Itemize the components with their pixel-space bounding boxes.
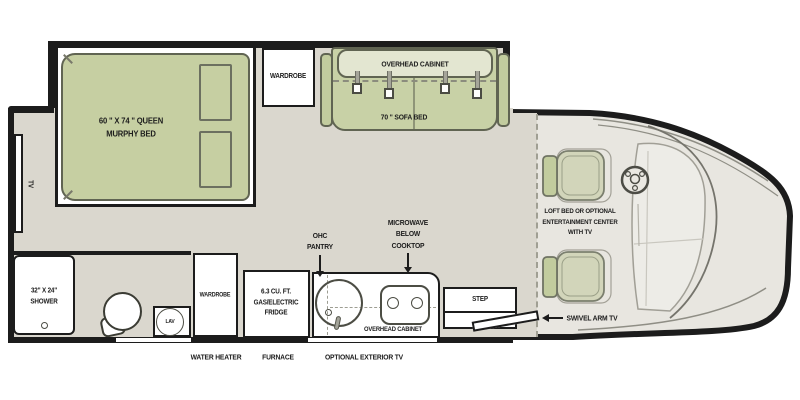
optional-exterior-tv-label: OPTIONAL EXTERIOR TV (325, 351, 403, 362)
exterior-tv-wall-inset (307, 337, 438, 343)
step-label: STEP (472, 295, 488, 306)
burner-icon (387, 297, 399, 309)
left-arrow-icon (542, 314, 549, 322)
shower-label: 32" X 24" SHOWER (30, 287, 57, 308)
driver-seat (543, 149, 611, 202)
sofa-armrest (497, 53, 510, 127)
down-arrow-icon (407, 253, 409, 267)
fridge-label: 6.3 CU. FT. GAS/ELECTRIC FRIDGE (254, 287, 299, 319)
loft-bed-label: LOFT BED OR OPTIONAL ENTERTAINMENT CENTE… (542, 207, 617, 239)
kitchen-overhead-cabinet-label: OVERHEAD CABINET (364, 325, 422, 335)
passenger-seat (543, 250, 611, 303)
ohc-pantry-label: OHC PANTRY (307, 230, 333, 253)
water-heater-label: WATER HEATER (191, 351, 242, 362)
seatbelt-icon (471, 71, 483, 102)
sofa-bed-label: 70 " SOFA BED (381, 111, 427, 122)
murphy-bed-label: 60 " X 74 " QUEEN MURPHY BED (99, 114, 163, 140)
left-arrow-icon (549, 317, 563, 319)
wardrobe-top-label: WARDROBE (270, 72, 306, 83)
lav-label: LAV (166, 318, 175, 326)
seatbelt-icon (351, 71, 363, 97)
seatbelt-icon (383, 71, 395, 102)
microwave-label: MICROWAVE BELOW COOKTOP (388, 217, 428, 251)
tv-label: TV (24, 180, 35, 188)
water-heater-wall-inset (115, 337, 192, 343)
cab-boundary-line (536, 114, 538, 337)
swivel-arm-tv-label: SWIVEL ARM TV (567, 312, 618, 323)
pillow (199, 64, 232, 121)
seatbelt-icon (439, 71, 451, 97)
faucet-icon (325, 309, 332, 316)
rv-floorplan: 60 " X 74 " QUEEN MURPHY BED WARDROBE OV… (0, 0, 800, 400)
steering-wheel-icon (622, 167, 648, 193)
tv (14, 134, 23, 233)
down-arrow-icon (319, 255, 321, 271)
toilet-bowl (103, 292, 142, 331)
down-arrow-icon (316, 271, 324, 277)
top-left-wall (8, 106, 54, 113)
shower-drain (41, 322, 48, 329)
burner-icon (411, 297, 423, 309)
furnace-label: FURNACE (262, 351, 294, 362)
down-arrow-icon (404, 267, 412, 273)
sofa-overhead-cabinet-label: OVERHEAD CABINET (381, 58, 448, 69)
wardrobe-bottom-label: WARDROBE (200, 292, 231, 301)
pillow (199, 131, 232, 188)
